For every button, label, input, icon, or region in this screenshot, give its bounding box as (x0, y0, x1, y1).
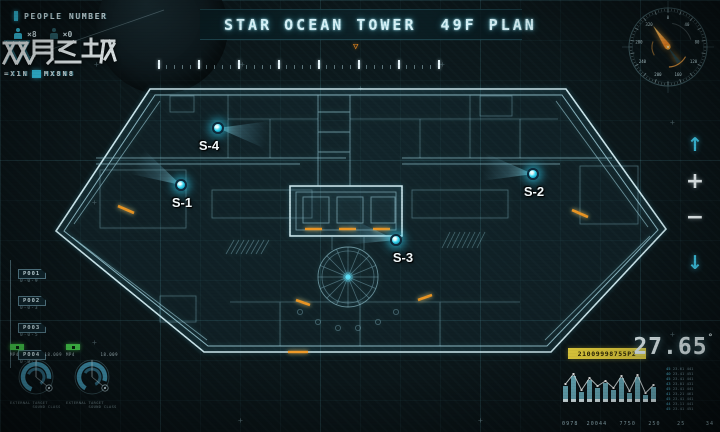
svg-text:240: 240 (639, 59, 647, 64)
camera-dot-icon (212, 122, 224, 134)
cyan-bar-icon (14, 11, 18, 21)
person-icon (50, 28, 58, 39)
waypoint-item[interactable]: P002 0-0-3 (18, 287, 46, 311)
radar-gauge-2: MP4 18.009 EXTERNAL TARGET SOUND CLASS (66, 344, 118, 409)
radar-dial (10, 357, 62, 397)
signal-bar-chart (562, 368, 662, 402)
waypoint-label: P001 (18, 269, 46, 279)
pan-down-button[interactable]: ↓ (682, 252, 708, 274)
people-number-label: PEOPLE NUMBER (24, 12, 107, 21)
grid-plus-mark: + (670, 118, 675, 127)
waypoint-item[interactable]: P003 0-0-5 (18, 314, 46, 338)
gauge-footer-right: TARGET SOUND CLASS (89, 401, 118, 409)
logo-glitch-text: =X1N MX8N8 (4, 70, 75, 78)
grid-plus-mark: + (478, 416, 483, 425)
camera-label: S-2 (517, 184, 551, 199)
svg-text:160: 160 (674, 72, 682, 77)
grid-plus-mark: + (670, 330, 675, 339)
compass-needle (650, 24, 681, 65)
grid-plus-mark: + (440, 60, 445, 69)
grid-plus-mark: + (92, 338, 97, 347)
degree-symbol: ° (708, 333, 714, 343)
camera-dot-icon (527, 168, 539, 180)
glitch-left: =X1N (4, 70, 29, 78)
gauge-footer-left: EXTERNAL (66, 401, 87, 409)
svg-text:40: 40 (685, 22, 690, 27)
grid-plus-mark: + (238, 416, 243, 425)
camera-label: S-4 (192, 138, 226, 153)
waypoint-label: P003 (18, 323, 46, 333)
waypoint-item[interactable]: P001 0-0-9 (18, 260, 46, 284)
radar-dial (66, 357, 118, 397)
green-indicator-icon (66, 344, 80, 350)
pan-up-button[interactable]: ↑ (682, 134, 708, 156)
gauge-footer-left: EXTERNAL (10, 401, 31, 409)
hud-root: PEOPLE NUMBER ×8 ×0 双月之城 =X1N MX8N8 STAR… (0, 0, 720, 432)
camera-label: S-1 (165, 195, 199, 210)
radar-gauge-1: MP4 18.009 EXTERNAL TARGET SOUND CLASS (10, 344, 62, 409)
svg-text:200: 200 (654, 72, 662, 77)
grid-plus-mark: + (240, 60, 245, 69)
people-number-header: PEOPLE NUMBER (14, 11, 107, 21)
compass: 04080120160200240280320 (620, 0, 716, 96)
green-indicator-icon (10, 344, 24, 350)
stats-lines: 0978 20044 7750 250 25 34 1046 \ 2048 \ … (562, 404, 714, 432)
stats-line-1: 0978 20044 7750 250 25 34 (562, 420, 714, 428)
gauge-footer-right: TARGET SOUND CLASS (33, 401, 62, 409)
grid-plus-mark: + (92, 198, 97, 207)
people-counts: ×8 ×0 (14, 28, 80, 39)
camera-dot-icon (175, 179, 187, 191)
waypoint-sub: 0-0-9 (18, 279, 46, 284)
grid-plus-mark: + (358, 84, 363, 93)
svg-text:280: 280 (635, 39, 643, 44)
page-title: STAR OCEAN TOWER 49F PLAN (224, 16, 537, 34)
svg-text:120: 120 (690, 59, 698, 64)
person-count: ×8 (27, 30, 37, 39)
waypoint-label: P002 (18, 296, 46, 306)
scale-ruler (158, 58, 450, 70)
waypoint-sub: 0-0-3 (18, 306, 46, 311)
zoom-out-button[interactable]: − (682, 205, 708, 230)
svg-text:80: 80 (695, 39, 700, 44)
zoom-in-button[interactable]: + (682, 169, 708, 194)
person-count: ×0 (63, 30, 73, 39)
title-bar: STAR OCEAN TOWER 49F PLAN (200, 9, 522, 40)
camera-label: S-3 (386, 250, 420, 265)
title-marker-icon: ▽ (353, 42, 358, 52)
svg-text:0: 0 (667, 15, 670, 20)
camera-dot-icon (390, 234, 402, 246)
cyan-block-icon (32, 70, 41, 78)
waypoint-sub: 0-0-5 (18, 333, 46, 338)
glitch-right: MX8N8 (44, 70, 75, 78)
svg-text:320: 320 (645, 22, 653, 27)
grid-plus-mark: + (94, 60, 99, 69)
person-icon (14, 28, 22, 39)
